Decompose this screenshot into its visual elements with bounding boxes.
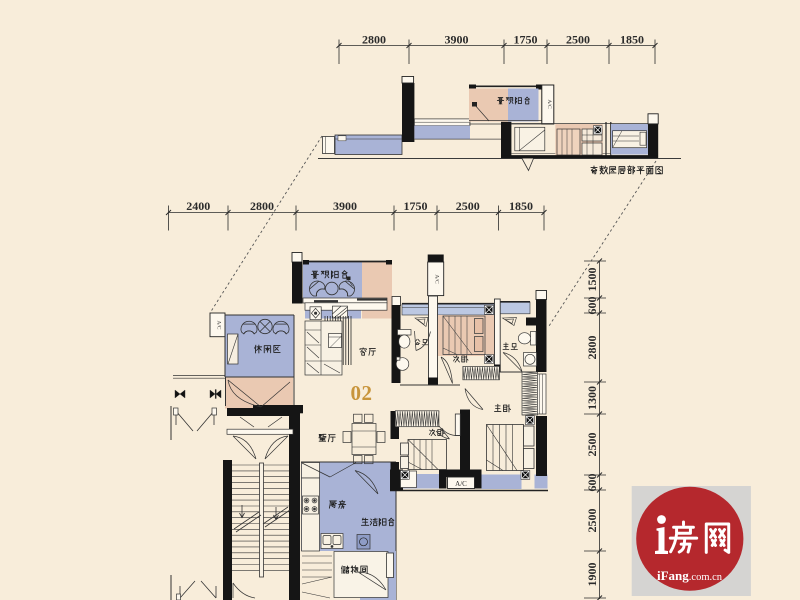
svg-text:2800: 2800 — [362, 33, 386, 47]
svg-text:1500: 1500 — [585, 268, 599, 292]
svg-text:2400: 2400 — [186, 199, 210, 213]
svg-text:02: 02 — [351, 381, 373, 405]
svg-text:3900: 3900 — [445, 33, 469, 47]
svg-text:1750: 1750 — [404, 199, 428, 213]
svg-text:2500: 2500 — [585, 509, 599, 533]
svg-text:2800: 2800 — [250, 199, 274, 213]
svg-text:1750: 1750 — [514, 33, 538, 47]
svg-text:1900: 1900 — [585, 563, 599, 587]
svg-text:1850: 1850 — [509, 199, 533, 213]
svg-text:A/C: A/C — [434, 274, 440, 284]
svg-text:1300: 1300 — [585, 386, 599, 410]
svg-text:1850: 1850 — [620, 33, 644, 47]
svg-text:2500: 2500 — [585, 433, 599, 457]
svg-text:3900: 3900 — [333, 199, 357, 213]
svg-text:2500: 2500 — [456, 199, 480, 213]
svg-text:600: 600 — [585, 297, 599, 315]
svg-text:2500: 2500 — [566, 33, 590, 47]
svg-text:A/C: A/C — [455, 480, 467, 488]
svg-text:A/C: A/C — [216, 321, 222, 330]
svg-text:600: 600 — [585, 474, 599, 492]
svg-text:A/C: A/C — [546, 99, 552, 109]
svg-text:2800: 2800 — [585, 336, 599, 360]
